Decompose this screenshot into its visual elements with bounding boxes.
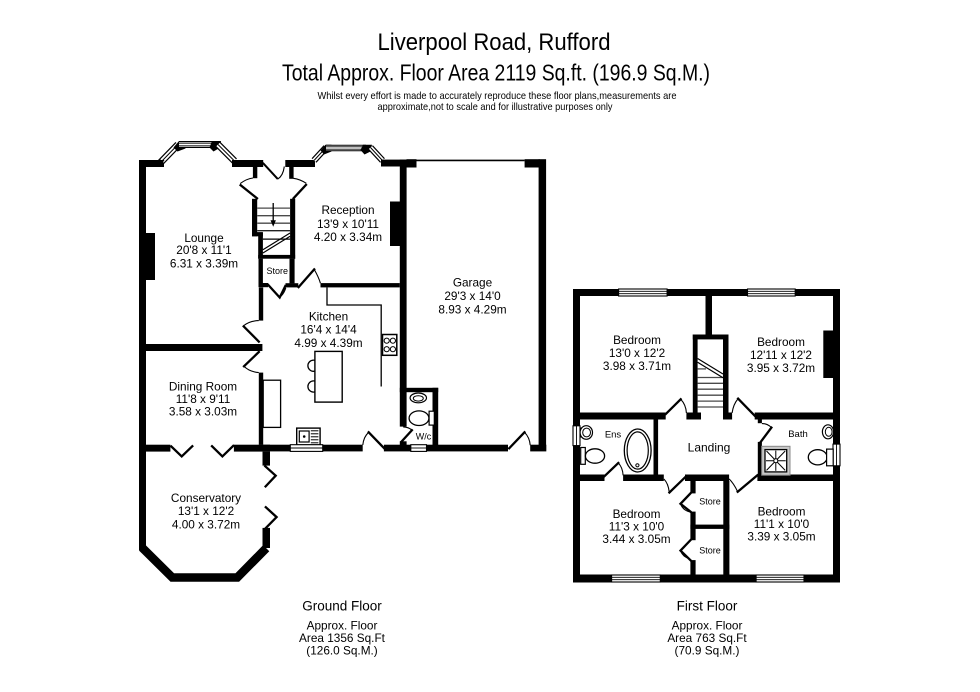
svg-text:(126.0 Sq.M.): (126.0 Sq.M.) (306, 644, 378, 658)
svg-text:Bath: Bath (788, 429, 808, 440)
svg-text:Store: Store (699, 545, 721, 555)
svg-text:6.31 x 3.39m: 6.31 x 3.39m (170, 257, 238, 271)
svg-text:Reception: Reception (321, 203, 374, 217)
svg-text:4.20 x 3.34m: 4.20 x 3.34m (314, 230, 382, 244)
svg-text:Conservatory: Conservatory (171, 491, 241, 505)
svg-text:20'8 x 11'1: 20'8 x 11'1 (176, 243, 231, 257)
svg-text:3.95 x 3.72m: 3.95 x 3.72m (747, 361, 815, 375)
svg-text:13'1 x 12'2: 13'1 x 12'2 (178, 504, 234, 518)
svg-text:W/c: W/c (416, 432, 432, 442)
svg-text:Landing: Landing (688, 441, 731, 455)
svg-text:Ens: Ens (605, 430, 622, 441)
svg-text:Total Approx. Floor Area 2119: Total Approx. Floor Area 2119 Sq.ft. (19… (282, 60, 710, 86)
svg-text:3.58 x 3.03m: 3.58 x 3.03m (169, 405, 237, 419)
svg-text:12'11 x 12'2: 12'11 x 12'2 (750, 348, 812, 362)
svg-text:4.00 x 3.72m: 4.00 x 3.72m (172, 517, 240, 531)
svg-text:3.39 x 3.05m: 3.39 x 3.05m (747, 529, 815, 543)
svg-text:Liverpool Road, Rufford: Liverpool Road, Rufford (378, 29, 611, 56)
svg-text:3.44 x 3.05m: 3.44 x 3.05m (602, 532, 670, 546)
svg-text:Bedroom: Bedroom (757, 335, 805, 349)
svg-text:16'4 x 14'4: 16'4 x 14'4 (300, 323, 357, 337)
svg-text:Garage: Garage (453, 276, 493, 290)
svg-text:3.98 x 3.71m: 3.98 x 3.71m (603, 359, 671, 373)
svg-text:approximate,not to scale and f: approximate,not to scale and for illustr… (378, 101, 614, 113)
svg-text:Store: Store (267, 266, 289, 276)
svg-text:(70.9 Sq.M.): (70.9 Sq.M.) (675, 644, 740, 658)
svg-text:13'0 x 12'2: 13'0 x 12'2 (609, 346, 665, 360)
svg-text:Ground Floor: Ground Floor (302, 599, 382, 614)
svg-text:First Floor: First Floor (677, 599, 738, 614)
svg-text:Kitchen: Kitchen (309, 309, 348, 323)
svg-text:29'3 x 14'0: 29'3 x 14'0 (444, 289, 501, 303)
svg-text:Bedroom: Bedroom (613, 333, 661, 347)
svg-text:Store: Store (699, 496, 721, 506)
svg-text:4.99 x 4.39m: 4.99 x 4.39m (294, 336, 362, 350)
svg-text:8.93 x 4.29m: 8.93 x 4.29m (438, 302, 506, 316)
